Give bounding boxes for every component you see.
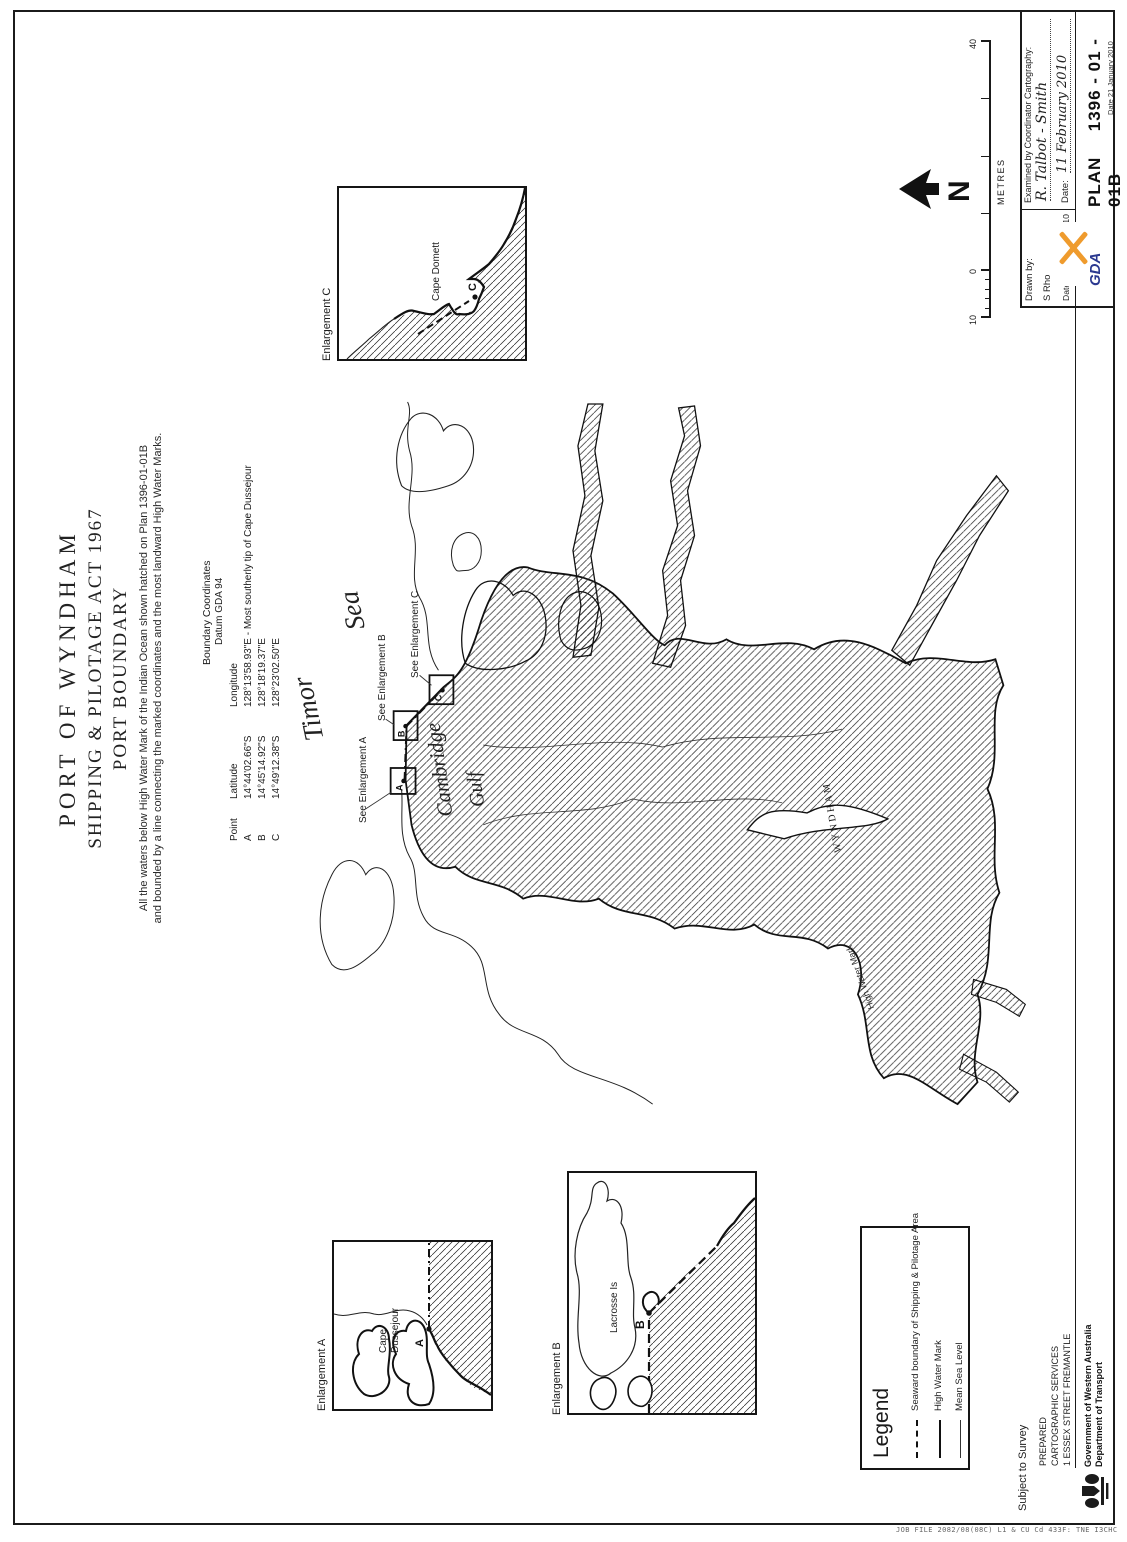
feature-line: Cape xyxy=(378,1308,390,1353)
titleblock-top-border xyxy=(1020,12,1022,308)
coordinates-header-row: Point Latitude Longitude xyxy=(229,451,240,841)
legend-item-seaward-boundary: Seaward boundary of Shipping & Pilotage … xyxy=(910,1233,924,1458)
see-enlargement-a-label: See Enlargement A xyxy=(358,737,369,823)
scalebar-tick xyxy=(981,316,990,318)
prepared-line-3: 1 ESSEX STREET FREMANTLE xyxy=(1061,1334,1073,1466)
government-block: Government of Western Australia Departme… xyxy=(1083,1324,1105,1467)
scalebar-minor-tick xyxy=(985,298,990,299)
boundary-description: All the waters below High Water Mark of … xyxy=(137,408,165,948)
legend-item-high-water-mark: High Water Mark xyxy=(933,1233,947,1458)
scalebar-num-10: 10 xyxy=(968,315,978,325)
scalebar-tick xyxy=(981,98,990,99)
leader-line xyxy=(366,792,392,809)
coordinates-table: Point Latitude Longitude A 14°44'02.66"S… xyxy=(229,451,285,841)
title-line-2: SHIPPING & PILOTAGE ACT 1967 xyxy=(85,428,107,928)
title-line-1: PORT OF WYNDHAM xyxy=(55,428,81,928)
coordinate-row-a: A 14°44'02.66"S 128°13'58.93"E - Most so… xyxy=(243,451,254,841)
north-arrow-icon: N xyxy=(897,163,973,215)
legend-heading: Legend xyxy=(870,1388,894,1458)
examined-signature: R. Talbot - Smith xyxy=(1034,19,1051,201)
government-line-1: Government of Western Australia xyxy=(1083,1324,1094,1467)
scalebar-baseline xyxy=(989,40,991,318)
plan-number-line: PLAN 1396 - 01 - 01B xyxy=(1085,12,1125,207)
coordinates-heading: Boundary Coordinates xyxy=(201,515,213,665)
cell-latitude: 14°44'02.66"S xyxy=(243,707,254,799)
gulf-label: Gulf xyxy=(463,770,491,808)
enlargement-a-map xyxy=(334,1242,491,1409)
gda-logo: GDA xyxy=(1051,222,1109,286)
feature-line: Dussejour xyxy=(390,1308,402,1353)
examined-date: 11 February 2010 xyxy=(1055,19,1071,173)
examined-date-label: Date: xyxy=(1060,180,1071,203)
titleblock-column-divider xyxy=(1020,209,1076,210)
scalebar-minor-tick xyxy=(985,289,990,290)
cell-latitude: 14°49'12.38"S xyxy=(271,707,282,799)
enlargement-b-map xyxy=(569,1173,755,1413)
plan-page: A B C Timor Sea Cambridge Gulf WYNDHAM H… xyxy=(0,0,1127,1542)
legend-item-label: Mean Sea Level xyxy=(954,1342,965,1411)
enlargement-a-inset: A Cape Dussejour xyxy=(332,1240,493,1411)
cell-longitude: 128°18'19.37"E xyxy=(257,451,268,707)
point-c-letter: C xyxy=(433,694,443,701)
scalebar-tick xyxy=(981,40,990,42)
examined-by-label: Examined by Coordinator Cartography: xyxy=(1023,47,1033,203)
north-letter: N xyxy=(943,180,973,202)
small-island xyxy=(628,1376,652,1406)
legend: Legend Seaward boundary of Shipping & Pi… xyxy=(860,1226,970,1470)
scalebar-units: METRES xyxy=(996,158,1006,205)
thin-line-sample xyxy=(960,1420,961,1458)
enlargement-a-label: Enlargement A xyxy=(316,1339,328,1411)
hatched-water xyxy=(429,1242,491,1395)
thick-line-sample xyxy=(939,1420,941,1458)
lacrosse-island-label: Lacrosse Is xyxy=(609,1282,621,1333)
river-arm xyxy=(653,406,701,667)
point-a-marker xyxy=(401,779,406,784)
offshore-island xyxy=(451,533,481,571)
legend-item-label: High Water Mark xyxy=(933,1340,944,1411)
col-longitude: Longitude xyxy=(229,451,240,707)
scalebar-minor-tick xyxy=(985,308,990,309)
microprint-job-reference: JOB FILE 2082/08(08C) L1 & CU Cd 433F: T… xyxy=(896,1526,1118,1534)
plan-date: Date 21 January 2010 xyxy=(1106,41,1115,115)
title-line-3: PORT BOUNDARY xyxy=(110,428,132,928)
enlargement-c-inset: C Cape Domett xyxy=(337,186,527,361)
description-line-1: All the waters below High Water Mark of … xyxy=(137,408,151,948)
cell-point: B xyxy=(257,799,268,841)
col-latitude: Latitude xyxy=(229,707,240,799)
subject-to-survey: Subject to Survey xyxy=(1017,1425,1029,1511)
scalebar-minor-tick xyxy=(985,279,990,280)
coordinates-datum: Datum GDA 94 xyxy=(214,495,225,645)
cape-dussejour-label: Cape Dussejour xyxy=(378,1308,402,1353)
enlargement-b-label: Enlargement B xyxy=(551,1342,563,1415)
point-c-letter: C xyxy=(467,283,479,291)
scalebar-num-0: 0 xyxy=(968,269,978,274)
small-island xyxy=(590,1377,615,1409)
cell-longitude: 128°13'58.93"E - Most southerly tip of C… xyxy=(243,451,254,707)
legend-item-label: Seaward boundary of Shipping & Pilotage … xyxy=(910,1213,921,1411)
see-enlargement-b-label: See Enlargement B xyxy=(377,634,388,721)
document-title: PORT OF WYNDHAM SHIPPING & PILOTAGE ACT … xyxy=(55,428,132,928)
point-b-marker xyxy=(403,724,408,729)
cell-longitude: 128°23'02.50"E xyxy=(271,451,282,707)
government-line-2: Department of Transport xyxy=(1094,1324,1105,1467)
scalebar-tick xyxy=(981,213,990,214)
point-a-dot xyxy=(426,1326,431,1331)
point-c-dot xyxy=(472,294,477,299)
prepared-block: PREPARED CARTOGRAPHIC SERVICES 1 ESSEX S… xyxy=(1037,1334,1073,1466)
point-b-letter: B xyxy=(633,1320,647,1329)
coordinate-row-c: C 14°49'12.38"S 128°23'02.50"E xyxy=(271,451,282,841)
gda-text: GDA xyxy=(1087,253,1104,286)
plan-word: PLAN xyxy=(1085,157,1104,207)
cape-domett-label: Cape Domett xyxy=(431,242,443,301)
point-b-dot xyxy=(646,1310,652,1316)
coat-of-arms-icon xyxy=(1079,1471,1113,1511)
point-a-letter: A xyxy=(395,784,405,791)
cell-latitude: 14°45'14.92"S xyxy=(257,707,268,799)
legend-item-mean-sea-level: Mean Sea Level xyxy=(954,1233,968,1458)
enlargement-c-label: Enlargement C xyxy=(321,288,333,361)
enlargement-b-inset: B Lacrosse Is xyxy=(567,1171,757,1415)
scalebar-tick xyxy=(981,156,990,157)
cape-landmass xyxy=(320,860,394,969)
lacrosse-island xyxy=(575,1181,636,1376)
dash-dot-line-sample xyxy=(916,1420,918,1458)
scalebar-tick-zero xyxy=(981,269,990,271)
see-enlargement-c-label: See Enlargement C xyxy=(410,591,421,678)
point-b-letter: B xyxy=(397,730,407,737)
description-line-2: and bounded by a line connecting the mar… xyxy=(151,408,165,948)
titleblock-left-border xyxy=(1020,306,1115,308)
drawn-by-label: Drawn by: xyxy=(1024,258,1035,301)
hatched-water xyxy=(649,1198,755,1413)
plan-sheet: A B C Timor Sea Cambridge Gulf WYNDHAM H… xyxy=(13,10,1115,1525)
point-c-marker xyxy=(440,688,445,693)
cell-point: A xyxy=(243,799,254,841)
col-point: Point xyxy=(229,799,240,841)
prepared-line-1: PREPARED xyxy=(1037,1334,1049,1466)
point-a-letter: A xyxy=(414,1339,426,1347)
scalebar-num-40: 40 xyxy=(968,39,978,49)
cell-point: C xyxy=(271,799,282,841)
river-arm xyxy=(892,476,1009,665)
prepared-line-2: CARTOGRAPHIC SERVICES xyxy=(1049,1334,1061,1466)
coordinate-row-b: B 14°45'14.92"S 128°18'19.37"E xyxy=(257,451,268,841)
